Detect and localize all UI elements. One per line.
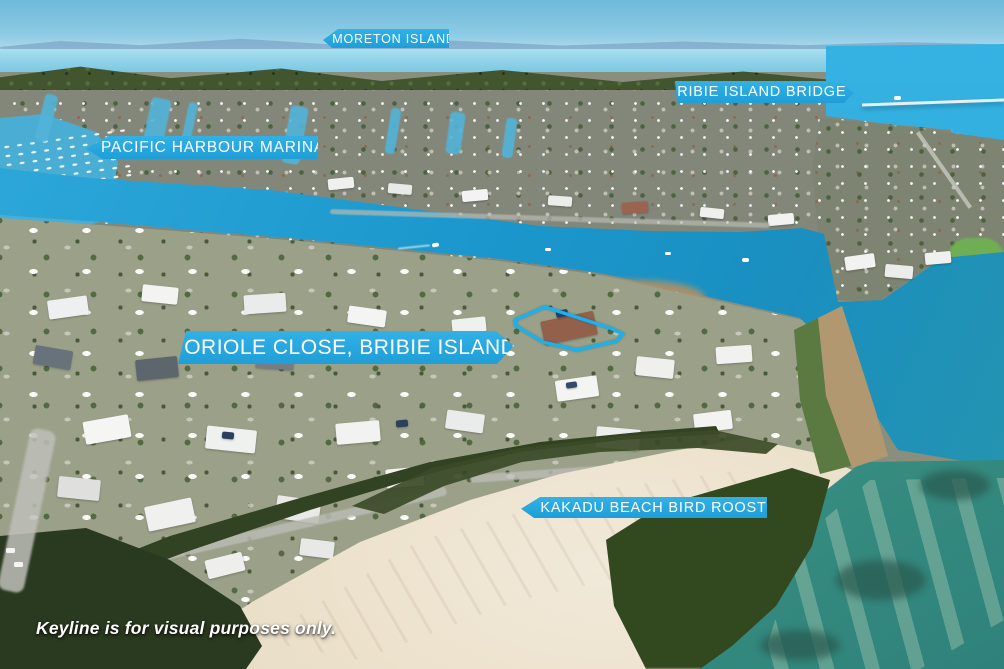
label-property-address: 7 ORIOLE CLOSE, BRIBIE ISLAND xyxy=(178,331,514,364)
house-roof xyxy=(715,345,752,364)
house-roof xyxy=(243,293,286,315)
parked-car xyxy=(6,548,15,553)
label-bribie-island-bridge-text: BRIBIE ISLAND BRIDGE xyxy=(667,84,847,100)
house-roof xyxy=(141,284,179,305)
house-roof xyxy=(884,264,913,279)
aerial-photo-canvas: MORETON ISLAND BRIBIE ISLAND BRIDGE PACI… xyxy=(0,0,1004,669)
boat xyxy=(742,258,749,262)
seagrass-patch xyxy=(836,560,926,600)
house-roof xyxy=(388,183,413,195)
seagrass-patch xyxy=(920,470,990,500)
house-roof xyxy=(635,356,675,379)
label-kakadu-beach-bird-roost: KAKADU BEACH BIRD ROOST xyxy=(521,497,767,518)
solar-panel xyxy=(396,419,409,427)
label-pacific-harbour-marina-text: PACIFIC HARBOUR MARINA xyxy=(101,139,325,157)
label-moreton-island: MORETON ISLAND xyxy=(323,29,449,48)
label-bribie-island-bridge: BRIBIE ISLAND BRIDGE xyxy=(675,81,854,103)
house-roof xyxy=(135,356,179,381)
keyline-disclaimer: Keyline is for visual purposes only. xyxy=(36,618,336,639)
house-roof xyxy=(548,195,573,207)
label-pacific-harbour-marina: PACIFIC HARBOUR MARINA xyxy=(86,136,318,159)
boat xyxy=(545,248,551,251)
parked-car xyxy=(14,562,23,567)
house-roof xyxy=(57,476,101,501)
house-roof xyxy=(335,420,381,445)
house-roof xyxy=(622,201,649,214)
boat xyxy=(894,96,901,100)
boat xyxy=(665,252,671,255)
house-roof xyxy=(925,251,952,265)
solar-panel xyxy=(222,431,235,439)
seagrass-patch xyxy=(760,630,840,660)
label-moreton-island-text: MORETON ISLAND xyxy=(332,32,456,46)
label-property-address-text: 7 ORIOLE CLOSE, BRIBIE ISLAND xyxy=(166,336,517,360)
house-roof xyxy=(768,213,795,226)
label-kakadu-beach-bird-roost-text: KAKADU BEACH BIRD ROOST xyxy=(540,500,766,516)
house-roof xyxy=(462,189,489,202)
